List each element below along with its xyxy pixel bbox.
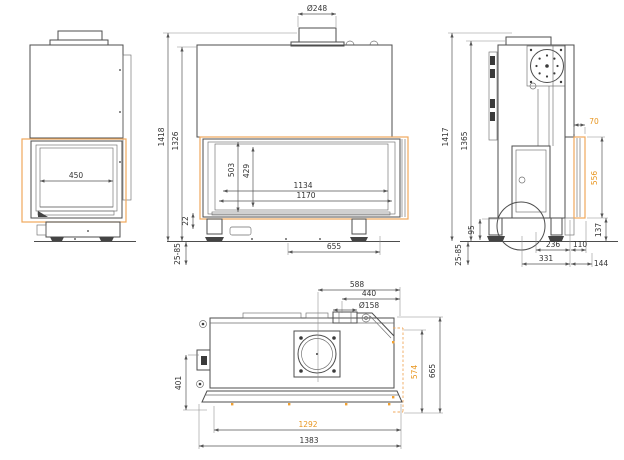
dim-top-flue-from-right: 588 <box>350 280 365 289</box>
dim-top-side-glass-depth: 574 <box>410 365 419 380</box>
front-view-outline <box>167 28 408 242</box>
dim-front-overall-height: 1418 <box>157 127 166 146</box>
dim-right-body-height: 1365 <box>460 131 469 150</box>
technical-drawing: 450 Ø248 1418 1326 <box>0 0 624 460</box>
dim-front-foot-spacing: 655 <box>327 242 342 251</box>
dim-top-flue-from-edge: 440 <box>362 289 377 298</box>
dim-front-glass-width: 1134 <box>293 181 312 190</box>
left-side-view-outline <box>22 31 136 242</box>
dim-right-base-to-front: 331 <box>539 254 554 263</box>
dim-top-glass-width: 1292 <box>298 420 317 429</box>
dim-front-glass-height: 429 <box>242 164 251 179</box>
dim-front-opening-width: 1170 <box>296 191 315 200</box>
dim-top-overall-width: 1383 <box>299 436 318 445</box>
dim-right-plinth-height: 137 <box>594 223 603 238</box>
dim-top-overall-depth: 665 <box>428 364 437 379</box>
dim-front-flue-diameter: Ø248 <box>307 4 327 13</box>
dim-right-glass-height: 556 <box>590 171 599 186</box>
dim-front-opening-height: 503 <box>227 163 236 178</box>
dim-top-flue-diameter: Ø158 <box>359 301 379 310</box>
right-side-dims: 1417 1365 70 556 137 95 25-85 236 110 33… <box>441 33 608 268</box>
dim-front-body-height: 1326 <box>171 131 180 150</box>
dim-top-left-depth: 401 <box>174 376 183 391</box>
dim-right-foot-adjustment: 25-85 <box>454 244 463 266</box>
top-view-outline <box>197 292 404 412</box>
left-side-dims: 450 <box>40 171 113 181</box>
drawing-canvas: 450 Ø248 1418 1326 <box>0 0 624 460</box>
dim-front-foot-adjustment: 25-85 <box>173 243 182 265</box>
dim-right-front-section: 144 <box>594 259 609 268</box>
front-view-dims: Ø248 1418 1326 503 429 1134 1170 655 22 … <box>157 4 392 265</box>
dim-left-glass-width: 450 <box>69 171 84 180</box>
dim-right-duct-height: 95 <box>467 225 476 235</box>
dim-right-overall-height: 1417 <box>441 127 450 146</box>
dim-right-front-overhang: 110 <box>573 240 588 249</box>
dim-right-glass-depth: 70 <box>589 117 599 126</box>
dim-front-bottom-trim: 22 <box>181 216 190 226</box>
dim-right-duct-to-front: 236 <box>546 240 561 249</box>
